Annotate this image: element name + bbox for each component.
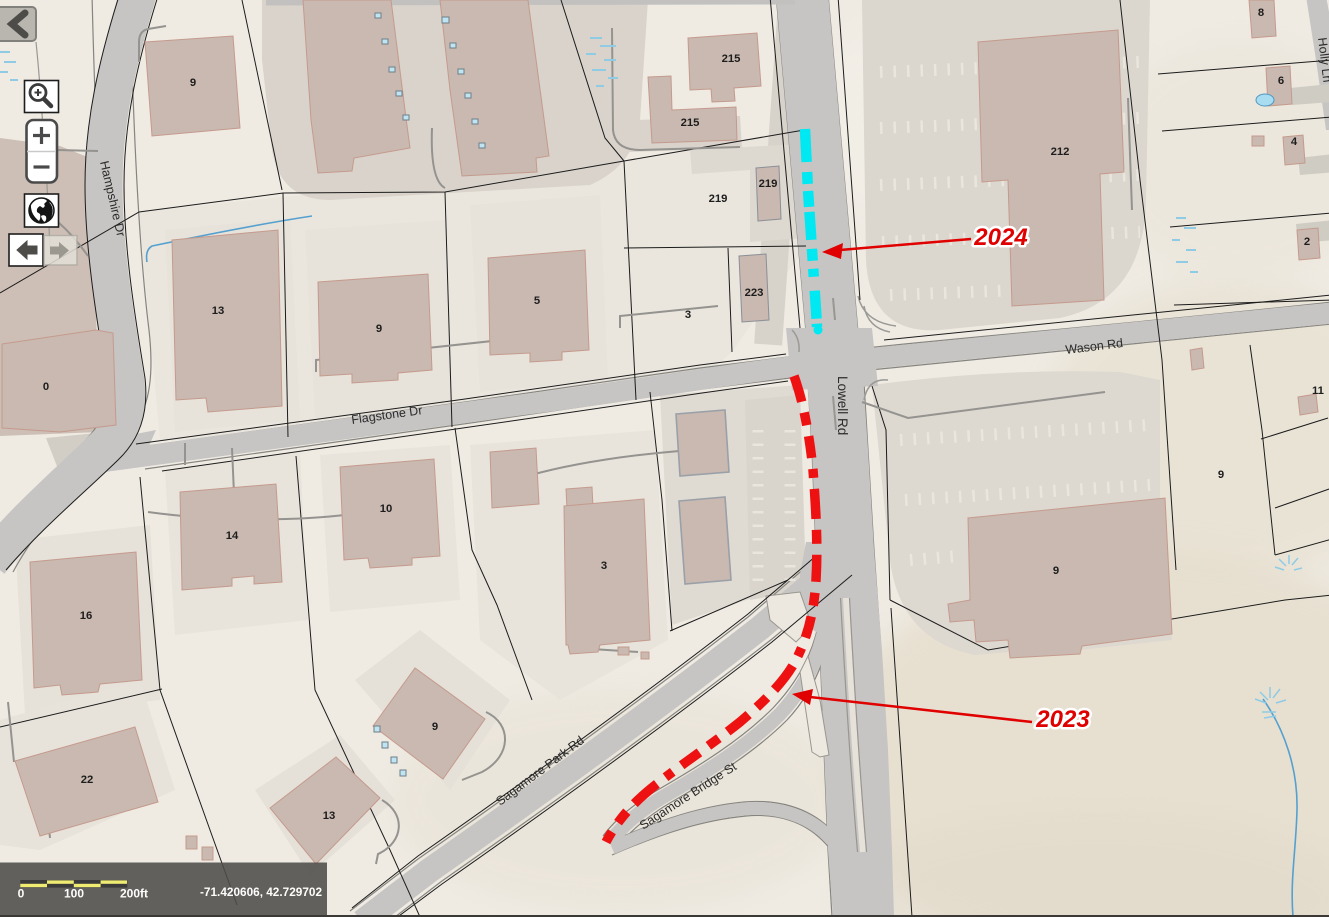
svg-text:14: 14 [226,530,239,542]
svg-text:10: 10 [380,503,393,515]
svg-text:219: 219 [709,193,728,205]
svg-text:2: 2 [1304,236,1310,248]
svg-text:9: 9 [1218,469,1224,481]
svg-text:-71.420606, 42.729702: -71.420606, 42.729702 [200,885,322,899]
svg-text:9: 9 [1053,565,1059,577]
svg-text:9: 9 [376,323,382,335]
svg-text:219: 219 [759,178,778,190]
svg-text:13: 13 [323,810,336,822]
svg-text:5: 5 [534,295,540,307]
svg-text:2023: 2023 [1035,706,1090,733]
svg-text:100: 100 [64,887,84,901]
svg-text:16: 16 [80,610,93,622]
svg-text:0: 0 [43,381,49,393]
svg-text:22: 22 [81,774,94,786]
svg-text:200ft: 200ft [120,887,148,901]
svg-text:215: 215 [681,117,700,129]
svg-text:223: 223 [745,287,764,299]
svg-text:6: 6 [1278,75,1284,87]
svg-text:215: 215 [722,53,741,65]
svg-text:212: 212 [1051,146,1070,158]
svg-text:13: 13 [212,305,225,317]
svg-text:Lowell Rd: Lowell Rd [835,376,850,435]
svg-text:2024: 2024 [973,224,1027,251]
svg-text:9: 9 [190,77,196,89]
svg-text:9: 9 [432,721,438,733]
svg-text:11: 11 [1312,385,1324,397]
svg-text:8: 8 [1258,7,1264,19]
svg-text:0: 0 [18,887,25,901]
svg-text:3: 3 [685,309,691,321]
svg-text:3: 3 [601,560,607,572]
svg-text:4: 4 [1291,136,1298,148]
